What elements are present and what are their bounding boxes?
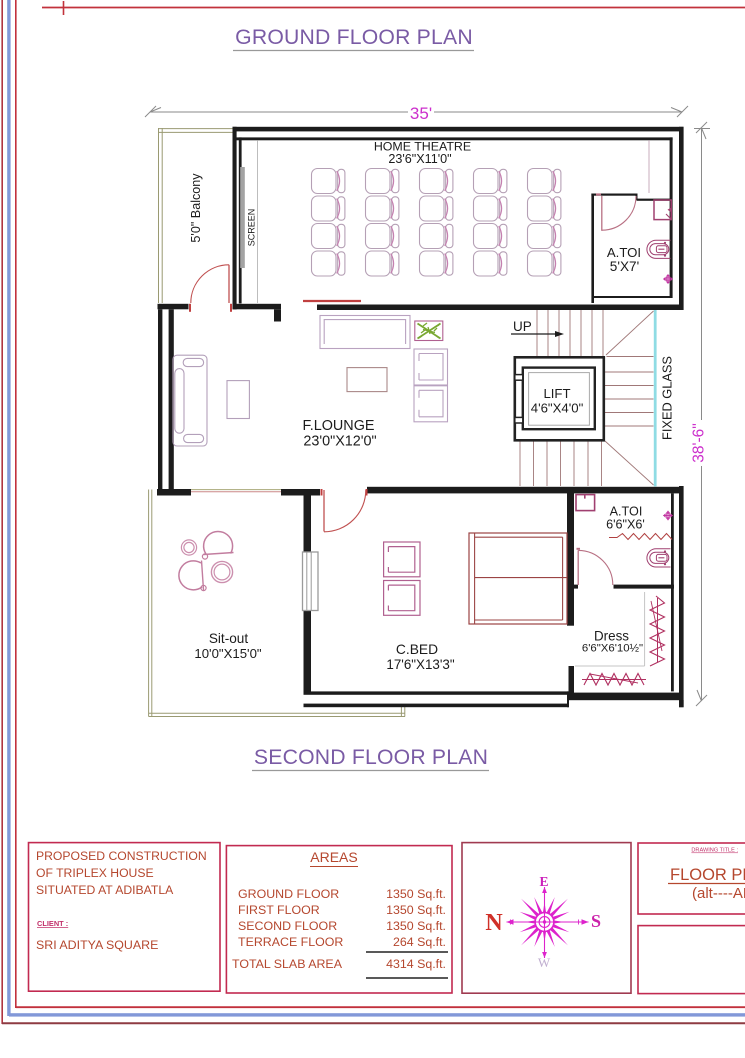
svg-text:6'6"X6'10½": 6'6"X6'10½": [582, 643, 643, 655]
svg-text:FIRST FLOOR: FIRST FLOOR: [238, 903, 320, 917]
svg-text:CLIENT :: CLIENT :: [37, 919, 68, 928]
svg-text:SRI ADITYA SQUARE: SRI ADITYA SQUARE: [36, 938, 158, 952]
svg-text:OF TRIPLEX HOUSE: OF TRIPLEX HOUSE: [36, 866, 154, 880]
svg-text:DRAWING TITLE :: DRAWING TITLE :: [691, 848, 738, 854]
svg-text:TERRACE FLOOR: TERRACE FLOOR: [238, 935, 343, 949]
svg-text:F.LOUNGE: F.LOUNGE: [303, 418, 375, 434]
svg-text:Dress: Dress: [594, 629, 629, 644]
svg-text:4'6"X4'0": 4'6"X4'0": [531, 401, 584, 416]
svg-text:1350 Sq.ft.: 1350 Sq.ft.: [386, 887, 446, 901]
svg-text:1350 Sq.ft.: 1350 Sq.ft.: [386, 903, 446, 917]
svg-text:LIFT: LIFT: [543, 386, 570, 401]
svg-text:PROPOSED CONSTRUCTION: PROPOSED CONSTRUCTION: [36, 849, 207, 863]
svg-text:N: N: [485, 910, 503, 936]
svg-text:E: E: [539, 874, 548, 889]
svg-text:SCREEN: SCREEN: [247, 209, 257, 247]
svg-text:23'6"X11'0": 23'6"X11'0": [388, 152, 451, 166]
svg-text:SITUATED AT ADIBATLA: SITUATED AT ADIBATLA: [36, 883, 174, 897]
svg-text:A.TOI: A.TOI: [607, 245, 641, 260]
svg-text:GROUND FLOOR PLAN: GROUND FLOOR PLAN: [235, 26, 473, 49]
svg-text:35': 35': [410, 104, 432, 123]
svg-text:Sit-out: Sit-out: [209, 631, 249, 646]
svg-text:10'0"X15'0": 10'0"X15'0": [194, 646, 262, 661]
svg-text:23'0"X12'0": 23'0"X12'0": [303, 434, 376, 450]
svg-text:4314 Sq.ft.: 4314 Sq.ft.: [386, 957, 446, 971]
svg-text:FLOOR PLAN: FLOOR PLAN: [670, 866, 745, 884]
svg-text:FIXED GLASS: FIXED GLASS: [660, 356, 675, 440]
svg-text:TOTAL SLAB AREA: TOTAL SLAB AREA: [232, 957, 343, 971]
svg-text:(alt----AB: (alt----AB: [692, 885, 745, 902]
svg-text:38'-6": 38'-6": [691, 423, 708, 462]
svg-text:264 Sq.ft.: 264 Sq.ft.: [393, 935, 446, 949]
svg-text:UP: UP: [513, 319, 532, 334]
svg-text:1350 Sq.ft.: 1350 Sq.ft.: [386, 919, 446, 933]
svg-text:SECOND FLOOR: SECOND FLOOR: [238, 919, 337, 933]
svg-text:6'6"X6': 6'6"X6': [606, 518, 645, 532]
svg-text:5'0" Balcony: 5'0" Balcony: [189, 173, 203, 243]
svg-text:W: W: [538, 955, 551, 970]
svg-text:GROUND FLOOR: GROUND FLOOR: [238, 887, 339, 901]
svg-text:A.TOI: A.TOI: [610, 505, 643, 519]
svg-text:SECOND FLOOR PLAN: SECOND FLOOR PLAN: [254, 746, 488, 769]
svg-text:AREAS: AREAS: [310, 849, 357, 865]
svg-text:S: S: [591, 911, 601, 931]
svg-text:C.BED: C.BED: [396, 642, 438, 657]
svg-text:17'6"X13'3": 17'6"X13'3": [386, 657, 454, 672]
svg-text:5'X7': 5'X7': [610, 259, 639, 274]
